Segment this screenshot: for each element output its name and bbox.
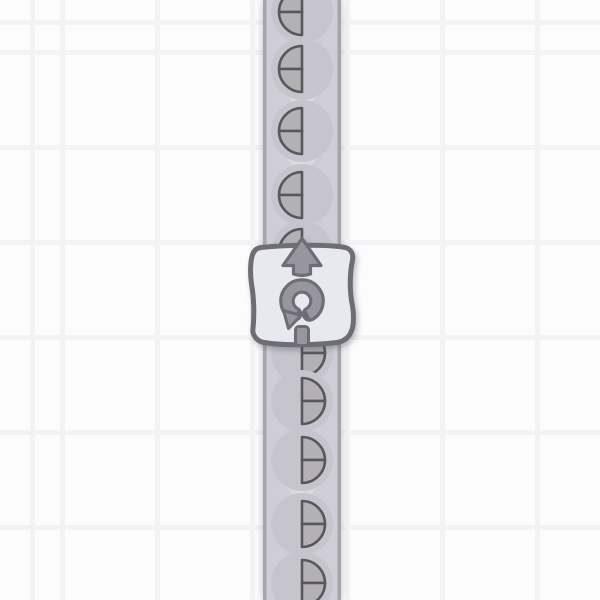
shape-item-left-half xyxy=(271,164,333,226)
rotator-building[interactable] xyxy=(251,239,354,346)
input-notch xyxy=(296,327,309,346)
game-viewport[interactable] xyxy=(0,0,600,600)
shape-item-right-half xyxy=(271,493,333,555)
shape-quadrant xyxy=(279,0,302,12)
shape-item-left-half xyxy=(271,38,333,100)
shape-item-right-half xyxy=(271,429,333,491)
shape-item-right-half xyxy=(271,370,333,432)
conveyor-scene xyxy=(0,0,600,600)
shape-item-left-half xyxy=(271,100,333,162)
shape-quadrant xyxy=(302,583,325,600)
